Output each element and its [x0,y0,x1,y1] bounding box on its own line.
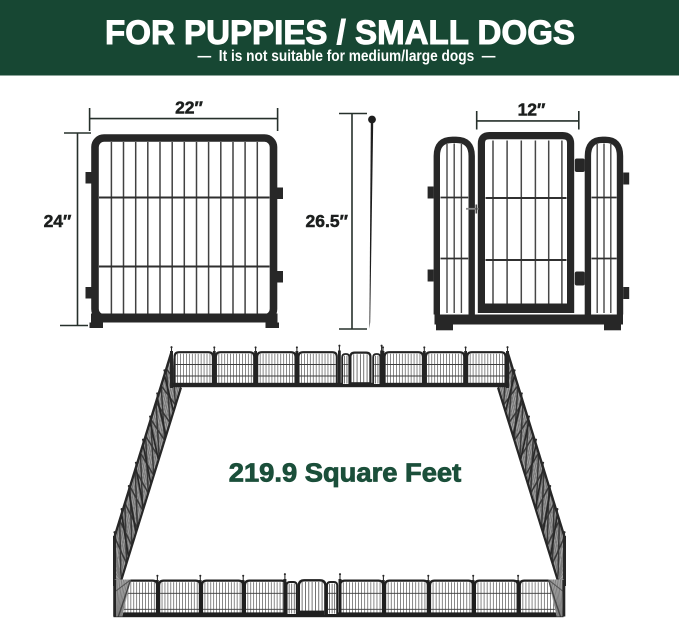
svg-text:26.5″: 26.5″ [306,211,349,231]
svg-text:219.9 Square Feet: 219.9 Square Feet [229,460,462,488]
svg-text:FOR PUPPIES / SMALL DOGS: FOR PUPPIES / SMALL DOGS [105,14,575,52]
svg-text:24″: 24″ [44,211,72,231]
svg-text:12″: 12″ [518,100,546,120]
svg-text:— It is not suitable for medi: — It is not suitable for medium/large do… [198,48,496,65]
svg-text:22″: 22″ [175,98,203,118]
